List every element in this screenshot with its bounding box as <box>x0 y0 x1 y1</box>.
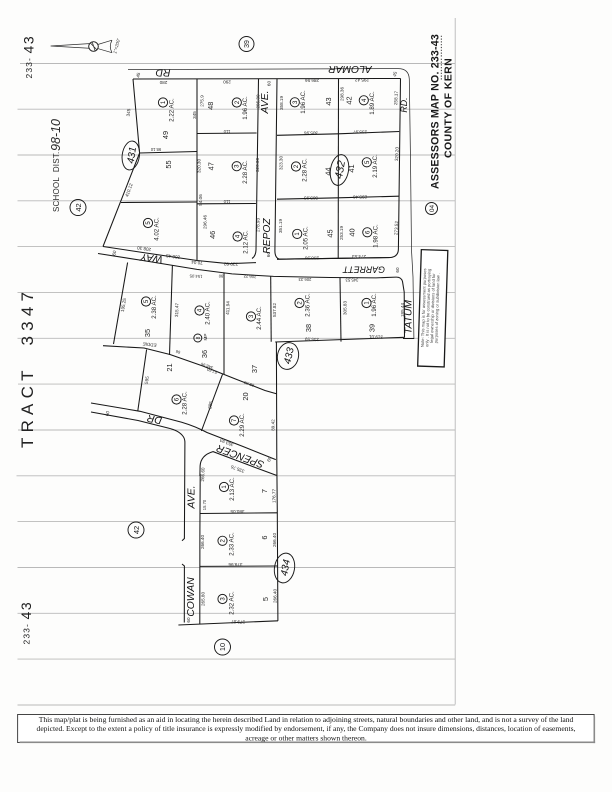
svg-text:345.53: 345.53 <box>345 277 358 282</box>
svg-text:335.59: 335.59 <box>304 337 319 343</box>
svg-text:110: 110 <box>223 129 230 134</box>
svg-text:44: 44 <box>324 167 333 175</box>
svg-text:54.06: 54.06 <box>198 194 203 206</box>
svg-text:42: 42 <box>132 526 141 534</box>
svg-text:1: 1 <box>161 100 167 104</box>
svg-text:273.52: 273.52 <box>393 220 399 235</box>
svg-text:acreage or other matters shown: acreage or other matters shown thereon. <box>245 734 367 743</box>
svg-text:GARRETT: GARRETT <box>342 264 385 274</box>
svg-text:233-: 233- <box>22 623 32 644</box>
svg-text:285.30: 285.30 <box>256 94 261 108</box>
svg-text:This map/plat is being furnish: This map/plat is being furnished as an a… <box>39 715 574 724</box>
svg-text:1: 1 <box>222 485 228 489</box>
svg-text:1"=200': 1"=200' <box>112 38 121 54</box>
svg-text:COUNTY OF KERN: COUNTY OF KERN <box>443 58 455 158</box>
svg-text:2.05 AC.: 2.05 AC. <box>302 226 309 250</box>
svg-text:6: 6 <box>260 535 269 539</box>
svg-text:98-10: 98-10 <box>49 119 63 151</box>
svg-text:45: 45 <box>326 229 335 237</box>
svg-text:265.80: 265.80 <box>200 592 205 606</box>
svg-text:433: 433 <box>282 346 296 365</box>
svg-text:2.28 AC.: 2.28 AC. <box>301 158 308 182</box>
svg-text:286.56: 286.56 <box>305 256 319 261</box>
svg-text:20: 20 <box>241 392 250 400</box>
svg-text:60: 60 <box>186 617 191 623</box>
svg-text:2: 2 <box>294 164 300 168</box>
svg-text:37: 37 <box>250 365 259 373</box>
svg-text:319.01: 319.01 <box>368 334 383 340</box>
svg-text:380.05: 380.05 <box>230 509 244 514</box>
svg-text:4: 4 <box>236 234 242 238</box>
svg-text:1: 1 <box>365 301 371 305</box>
svg-text:1.96 AC.: 1.96 AC. <box>300 90 307 114</box>
svg-text:47: 47 <box>207 162 216 170</box>
svg-text:15.70: 15.70 <box>202 499 207 510</box>
svg-text:320.30: 320.30 <box>197 159 202 173</box>
svg-text:1.89 AC.: 1.89 AC. <box>369 91 376 115</box>
svg-text:185.44: 185.44 <box>400 303 405 317</box>
svg-text:66: 66 <box>174 349 180 355</box>
svg-text:275.9: 275.9 <box>200 95 205 107</box>
svg-text:320.30: 320.30 <box>255 158 260 172</box>
svg-text:206.45: 206.45 <box>165 253 180 260</box>
svg-text:298.36: 298.36 <box>339 87 344 101</box>
svg-text:21: 21 <box>165 363 174 371</box>
svg-text:208.30: 208.30 <box>136 245 151 252</box>
svg-text:45: 45 <box>392 71 398 78</box>
svg-text:5: 5 <box>365 160 371 164</box>
svg-text:2: 2 <box>298 301 304 305</box>
svg-text:411.94: 411.94 <box>225 301 230 315</box>
svg-text:42: 42 <box>345 96 354 104</box>
svg-text:305.96: 305.96 <box>304 131 318 136</box>
svg-text:2.28 AC.: 2.28 AC. <box>242 160 249 184</box>
svg-text:39: 39 <box>244 40 251 48</box>
svg-text:345: 345 <box>126 108 132 117</box>
svg-text:206.33: 206.33 <box>298 277 311 282</box>
svg-text:89.42: 89.42 <box>271 419 276 431</box>
svg-text:88.60: 88.60 <box>243 380 255 388</box>
svg-text:266.40: 266.40 <box>273 589 278 603</box>
svg-text:379.96: 379.96 <box>228 562 242 567</box>
svg-text:8: 8 <box>196 336 202 339</box>
svg-text:2.12 AC.: 2.12 AC. <box>243 230 250 254</box>
svg-text:35: 35 <box>143 329 152 337</box>
svg-text:434: 434 <box>279 558 293 577</box>
svg-text:2: 2 <box>221 538 227 542</box>
svg-text:278.93: 278.93 <box>255 218 260 232</box>
svg-text:110: 110 <box>223 199 230 204</box>
svg-text:2.19 AC.: 2.19 AC. <box>372 154 379 178</box>
svg-text:6: 6 <box>175 397 181 401</box>
svg-text:TRACT 3347: TRACT 3347 <box>18 287 37 448</box>
svg-text:290: 290 <box>223 79 231 84</box>
svg-text:2.22 AC.: 2.22 AC. <box>169 98 176 122</box>
svg-text:2: 2 <box>235 100 241 104</box>
svg-text:2.32 AC.: 2.32 AC. <box>228 591 235 615</box>
svg-text:2.40 AC.: 2.40 AC. <box>205 301 212 325</box>
svg-text:258.17: 258.17 <box>393 90 399 105</box>
svg-text:REPOZ: REPOZ <box>262 218 273 254</box>
svg-text:280: 280 <box>159 80 167 85</box>
svg-text:154.05: 154.05 <box>189 274 203 279</box>
svg-text:3: 3 <box>293 100 299 104</box>
svg-text:305.95: 305.95 <box>304 196 318 201</box>
svg-text:305.83: 305.83 <box>342 301 347 315</box>
svg-text:176.77: 176.77 <box>272 489 277 503</box>
svg-text:320.20: 320.20 <box>394 146 400 161</box>
svg-text:432: 432 <box>333 160 348 180</box>
svg-text:4: 4 <box>198 308 204 312</box>
svg-text:RD: RD <box>155 66 170 77</box>
svg-text:266.60: 266.60 <box>200 467 206 482</box>
svg-text:2.29 AC.: 2.29 AC. <box>239 413 246 437</box>
svg-text:TATUM: TATUM <box>403 300 414 334</box>
svg-text:2.44 AC.: 2.44 AC. <box>256 306 263 330</box>
svg-text:595: 595 <box>144 375 150 384</box>
svg-text:5: 5 <box>144 299 150 303</box>
svg-text:7: 7 <box>232 418 238 422</box>
svg-text:235.97: 235.97 <box>353 130 367 135</box>
svg-text:266.40: 266.40 <box>200 535 205 549</box>
svg-text:537.82: 537.82 <box>272 303 277 317</box>
svg-text:253.19: 253.19 <box>339 226 344 240</box>
svg-text:40: 40 <box>348 228 357 236</box>
svg-text:345: 345 <box>192 111 197 119</box>
svg-text:70.04: 70.04 <box>191 260 203 266</box>
svg-text:4: 4 <box>362 98 368 102</box>
svg-text:10: 10 <box>218 643 227 651</box>
svg-text:DR: DR <box>146 412 163 426</box>
svg-text:1.96 AC.: 1.96 AC. <box>242 96 249 120</box>
svg-text:43: 43 <box>324 97 333 105</box>
svg-text:335.76: 335.76 <box>230 464 245 474</box>
svg-text:2.36 AC.: 2.36 AC. <box>305 293 312 317</box>
svg-text:379.87: 379.87 <box>230 619 245 625</box>
svg-text:296.46: 296.46 <box>202 215 207 229</box>
svg-text:351.19: 351.19 <box>278 219 283 233</box>
svg-text:358.19: 358.19 <box>279 96 284 110</box>
svg-text:4.02 AC.: 4.02 AC. <box>154 217 161 241</box>
svg-text:60: 60 <box>266 456 273 463</box>
svg-text:04: 04 <box>429 205 436 213</box>
svg-text:266.40: 266.40 <box>272 533 277 547</box>
svg-text:286.56: 286.56 <box>305 78 319 83</box>
svg-text:36: 36 <box>200 350 209 358</box>
svg-text:2.13 AC.: 2.13 AC. <box>229 477 236 501</box>
svg-text:295: 295 <box>207 400 213 409</box>
svg-text:2.33 AC.: 2.33 AC. <box>228 532 235 556</box>
svg-text:60: 60 <box>395 267 400 273</box>
svg-text:39: 39 <box>368 324 377 332</box>
svg-text:COWAN: COWAN <box>186 577 197 617</box>
svg-text:43: 43 <box>18 601 34 620</box>
svg-text:SCHOOL DIST.: SCHOOL DIST. <box>52 152 61 212</box>
svg-text:2.38 AC.: 2.38 AC. <box>151 295 158 319</box>
svg-text:233-: 233- <box>24 57 34 78</box>
svg-text:295.42: 295.42 <box>355 77 369 82</box>
svg-text:60: 60 <box>111 250 117 256</box>
svg-text:206.22: 206.22 <box>243 274 257 279</box>
svg-text:AVE.: AVE. <box>260 91 271 115</box>
svg-text:80: 80 <box>218 274 224 279</box>
svg-text:1: 1 <box>295 232 301 236</box>
svg-text:431: 431 <box>126 146 139 164</box>
svg-text:3: 3 <box>221 597 227 601</box>
svg-text:41: 41 <box>347 164 356 172</box>
svg-text:274.53: 274.53 <box>352 254 366 259</box>
svg-text:98.10: 98.10 <box>150 147 161 152</box>
svg-text:46: 46 <box>208 231 217 239</box>
svg-text:295.40: 295.40 <box>353 194 367 199</box>
svg-text:3: 3 <box>249 314 255 318</box>
svg-text:5: 5 <box>261 597 270 601</box>
svg-text:410.12: 410.12 <box>124 182 134 197</box>
svg-text:MP: MP <box>203 334 208 341</box>
svg-text:1.98 AC.: 1.98 AC. <box>372 224 379 248</box>
svg-text:3: 3 <box>235 164 241 168</box>
svg-text:2.28 AC.: 2.28 AC. <box>182 391 189 415</box>
svg-text:60: 60 <box>267 81 272 87</box>
svg-text:AVE.: AVE. <box>187 486 198 510</box>
svg-text:45: 45 <box>135 72 141 78</box>
svg-text:220.02: 220.02 <box>223 261 238 267</box>
svg-text:ASSESSORS MAP NO. 233-43: ASSESSORS MAP NO. 233-43 <box>430 34 442 189</box>
svg-text:5: 5 <box>146 221 152 225</box>
svg-text:38: 38 <box>304 324 313 332</box>
svg-text:48: 48 <box>206 102 215 110</box>
svg-text:depicted. Except to the extent: depicted. Except to the extent a policy … <box>37 724 576 733</box>
svg-text:43: 43 <box>21 35 37 54</box>
svg-text:60: 60 <box>266 252 271 258</box>
svg-text:49: 49 <box>161 131 170 139</box>
svg-text:55: 55 <box>164 160 173 168</box>
svg-text:42: 42 <box>74 203 83 211</box>
svg-text:EDDIE: EDDIE <box>142 341 156 347</box>
svg-text:6: 6 <box>365 230 371 234</box>
svg-text:315.47: 315.47 <box>174 302 180 317</box>
svg-text:1.96 AC.: 1.96 AC. <box>371 293 378 317</box>
svg-text:ALOMAR: ALOMAR <box>328 63 373 74</box>
svg-text:323.30: 323.30 <box>279 156 284 170</box>
svg-text:7: 7 <box>260 489 269 493</box>
